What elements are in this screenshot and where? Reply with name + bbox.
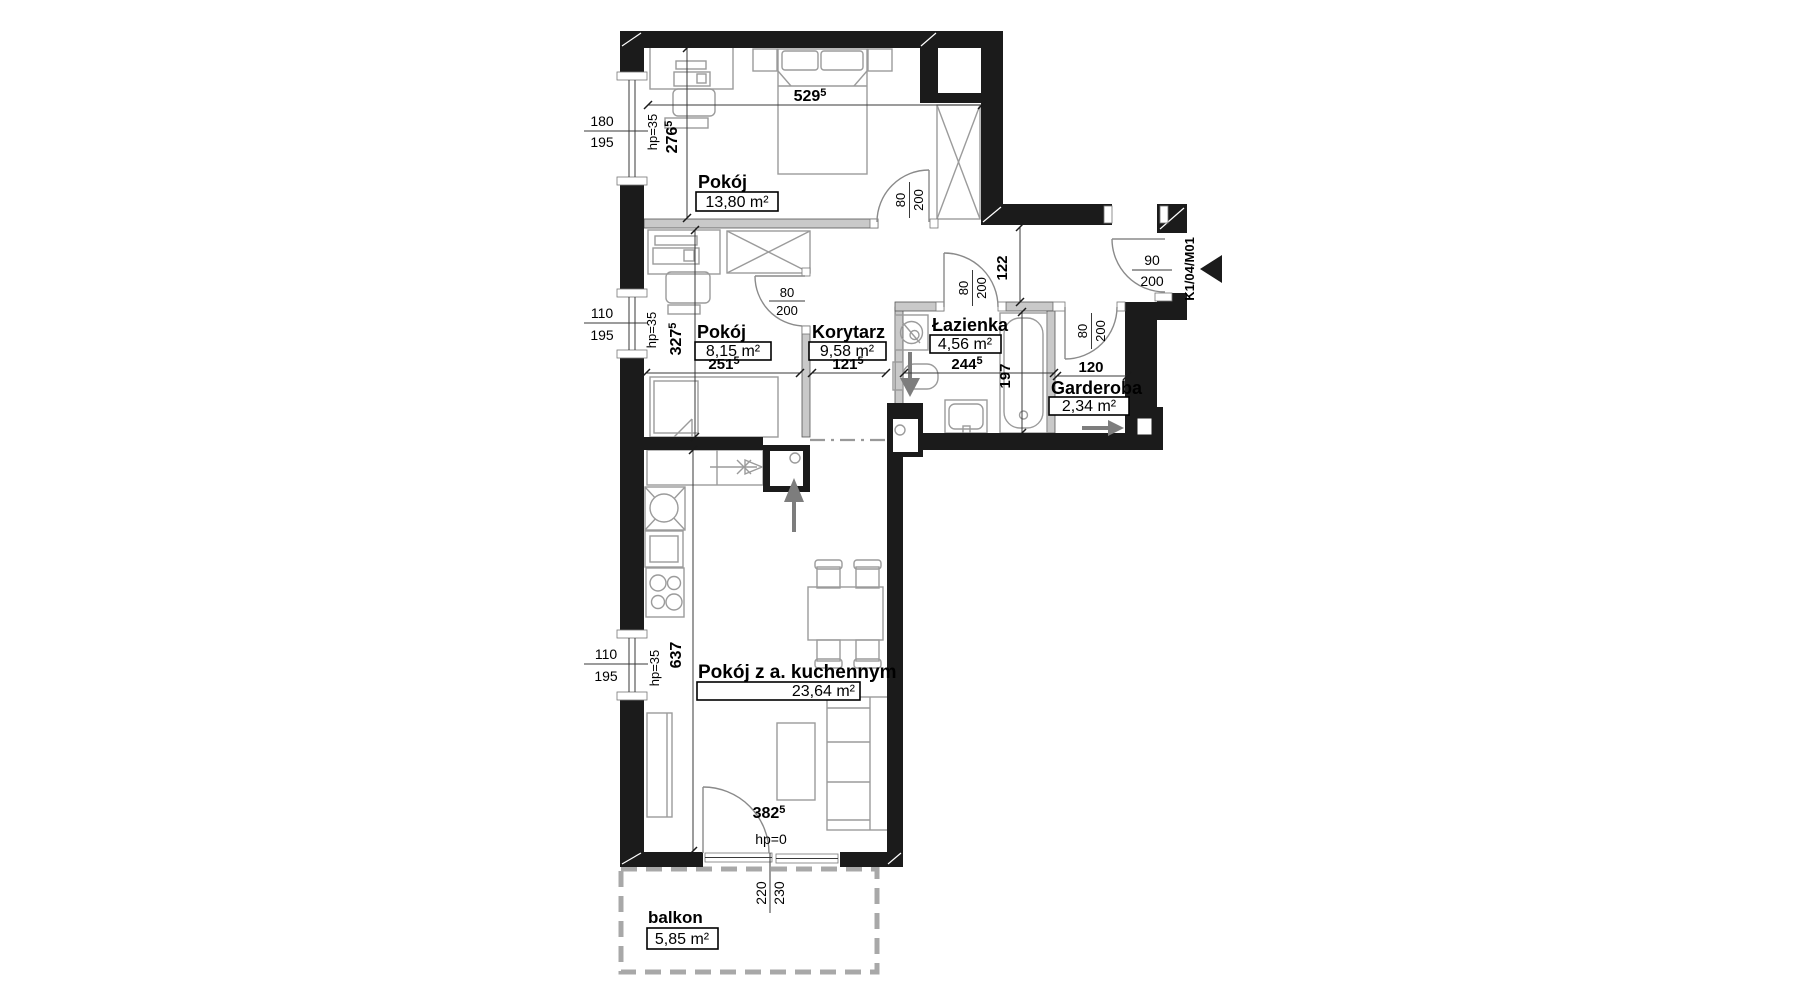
window2-height: 195: [590, 327, 614, 343]
svg-text:80: 80: [956, 281, 971, 295]
dim-637: 637: [668, 642, 685, 669]
window3-height: 195: [594, 668, 618, 684]
wall-right-upper: [981, 31, 1003, 225]
vent-hood-icon: [710, 460, 762, 474]
room-name-garderoba: Garderoba: [1051, 378, 1143, 398]
window1-sill: hp=35: [645, 114, 660, 151]
door-bathroom: [944, 253, 998, 307]
shaft-kitchen-inner: [770, 451, 803, 486]
window1-width: 180: [590, 113, 614, 129]
door-label-bathroom: 80 200: [956, 270, 989, 306]
stove-icon: [646, 568, 684, 617]
wall-pokoj1-bottom: [644, 219, 878, 228]
dim-197: 197: [997, 363, 1014, 388]
shaft-top-inner: [938, 48, 981, 93]
dim-251: 2515: [708, 355, 739, 373]
entrance-marker-triangle-icon: [1200, 255, 1222, 283]
svg-text:200: 200: [911, 189, 926, 211]
dim-balcony-220: 220: [753, 881, 769, 905]
svg-text:80: 80: [780, 285, 794, 300]
dim-122: 122: [994, 255, 1011, 280]
shaft-bath-inner: [893, 419, 918, 452]
wardrobe2-icon: [727, 231, 810, 273]
window3-width: 110: [595, 646, 618, 662]
kitchen-sink-icon: [645, 487, 685, 530]
floor-plan-page: Pokój 13,80 m² Pokój 8,15 m² Korytarz 9,…: [0, 0, 1800, 1008]
entrance-code: K1/04/M01: [1182, 237, 1197, 301]
room-area-salon: 23,64 m²: [792, 683, 856, 700]
dim-529: 5295: [794, 87, 827, 105]
window2-width: 110: [591, 305, 614, 321]
door-label-bedroom1: 80 200: [893, 182, 926, 218]
dim-120: 120: [1078, 359, 1103, 376]
door-label-bedroom2: 80 200: [769, 285, 805, 318]
window-1: [617, 72, 647, 185]
fridge-icon: [645, 531, 683, 567]
svg-text:200: 200: [1093, 320, 1108, 342]
coffee-table-icon: [777, 723, 815, 800]
window2-sill: hp=35: [644, 312, 659, 349]
svg-text:200: 200: [974, 277, 989, 299]
balcony-door-glazing: [705, 853, 838, 863]
room-name-pokoj1: Pokój: [698, 172, 747, 192]
window1-height: 195: [590, 134, 614, 150]
floor-plan-drawing: Pokój 13,80 m² Pokój 8,15 m² Korytarz 9,…: [0, 0, 1800, 1008]
wall-living-right: [887, 450, 903, 867]
wardrobe1-icon: [937, 105, 980, 219]
chair2-icon: [666, 272, 710, 303]
svg-text:200: 200: [776, 303, 798, 318]
door-label-garderoba: 80 200: [1075, 313, 1108, 349]
dim-276: 2765: [663, 121, 681, 154]
svg-text:90: 90: [1144, 252, 1160, 268]
mouse-icon: [697, 74, 706, 83]
mouse2-icon: [684, 250, 694, 261]
room-area-garderoba: 2,34 m²: [1062, 398, 1117, 415]
room-name-lazienka: Łazienka: [932, 315, 1009, 335]
door-label-entrance: 90 200: [1132, 252, 1172, 289]
room-area-balkon: 5,85 m²: [655, 931, 710, 948]
monitor2-icon: [655, 236, 697, 245]
single-bed-icon: [650, 377, 778, 437]
wall-bathroom-bottom: [887, 433, 1163, 450]
double-bed-icon: [778, 49, 867, 174]
desk-icon: [650, 46, 733, 89]
dim-382: 3825: [753, 804, 786, 822]
svg-text:200: 200: [1140, 273, 1164, 289]
nightstand-left-icon: [753, 49, 777, 71]
chair-icon: [673, 89, 715, 116]
printer-icon: [676, 61, 706, 69]
dim-244: 2445: [951, 355, 982, 373]
structural-walls: [620, 31, 1187, 867]
svg-text:80: 80: [1075, 324, 1090, 338]
sideboard-icon: [647, 713, 672, 817]
svg-text:80: 80: [893, 193, 908, 207]
window3-sill: hp=35: [647, 650, 662, 687]
dim-121: 1215: [832, 355, 863, 373]
room-area-pokoj1: 13,80 m²: [705, 194, 769, 211]
nightstand-right-icon: [868, 49, 892, 71]
wall-bathroom-top-right: [1006, 302, 1053, 311]
window-3: [617, 630, 647, 700]
corner-niche: [1137, 418, 1152, 435]
wall-kitchen-top: [644, 437, 763, 450]
room-area-lazienka: 4,56 m²: [938, 336, 993, 353]
sink-icon: [945, 400, 987, 435]
dim-327: 3275: [667, 323, 685, 356]
kitchen-fixtures: [645, 450, 763, 617]
room-name-balkon: balkon: [648, 908, 703, 927]
room-name-korytarz: Korytarz: [812, 322, 885, 342]
dining-table-icon: [808, 560, 883, 668]
room-name-pokoj2: Pokój: [697, 322, 746, 342]
balcony-door-sill: hp=0: [755, 831, 787, 847]
dim-balcony-230: 230: [771, 881, 787, 905]
sofa-icon: [827, 697, 890, 830]
room-name-salon: Pokój z a. kuchennym: [698, 662, 897, 683]
